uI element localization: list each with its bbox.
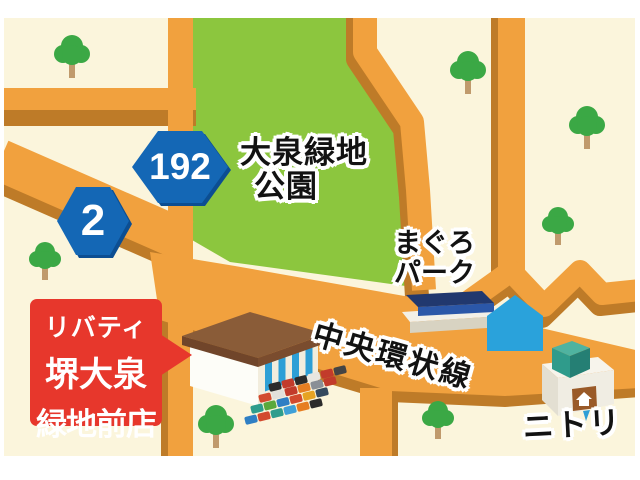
park-name-line1: 大泉緑地 xyxy=(240,135,368,170)
route-number-192: 192 xyxy=(134,146,226,188)
access-map: 大泉緑地 公園 まぐろ パーク 中央環状線 ニトリ 192 2 リバティ 堺大泉… xyxy=(0,0,640,480)
maguro-park-line2: パーク xyxy=(394,259,475,289)
store-sign: リバティ 堺大泉 緑地前店 xyxy=(30,299,162,426)
maguro-park-label: まぐろ パーク xyxy=(394,229,475,288)
store-sign-name1: 堺大泉 xyxy=(30,347,162,396)
park-name-line2: 公園 xyxy=(254,170,368,204)
nitori-label: ニトリ xyxy=(522,406,623,445)
store-sign-name2: 緑地前店 xyxy=(30,399,162,444)
maguro-park-line1: まぐろ xyxy=(394,228,475,258)
store-sign-pointer xyxy=(160,334,192,376)
park-name-label: 大泉緑地 公園 xyxy=(240,136,368,204)
road-stub-bottom xyxy=(360,388,392,456)
route-number-2: 2 xyxy=(58,196,128,246)
store-sign-brand: リバティ xyxy=(30,308,162,344)
